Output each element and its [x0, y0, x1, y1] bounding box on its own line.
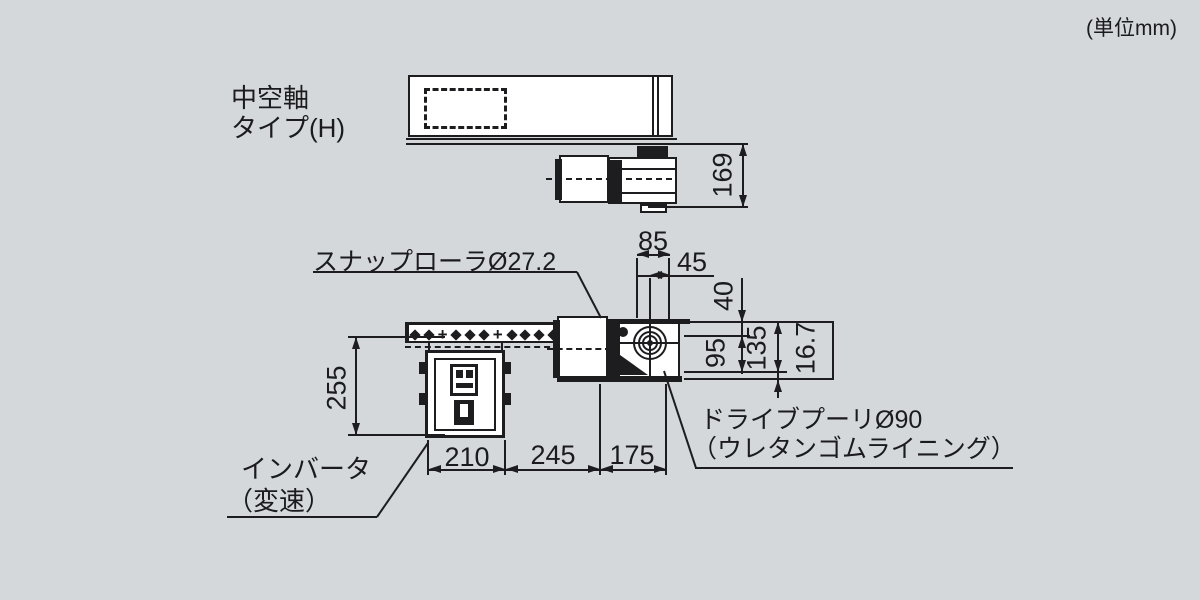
- callout-underline: [695, 467, 1013, 469]
- section-wedge: [613, 350, 648, 375]
- callout-underline: [313, 271, 577, 273]
- drawing-canvas: (単位mm) 中空軸 タイプ(H) 169 ++: [0, 0, 1200, 600]
- callout-underline: [227, 516, 377, 518]
- leader-lines-layer: [0, 0, 1200, 600]
- drive-pulley-callout-line2: （ウレタンゴムライニング）: [692, 429, 1016, 465]
- bolt-dot: [618, 327, 628, 337]
- inverter-callout-line2: （変速）: [227, 481, 331, 518]
